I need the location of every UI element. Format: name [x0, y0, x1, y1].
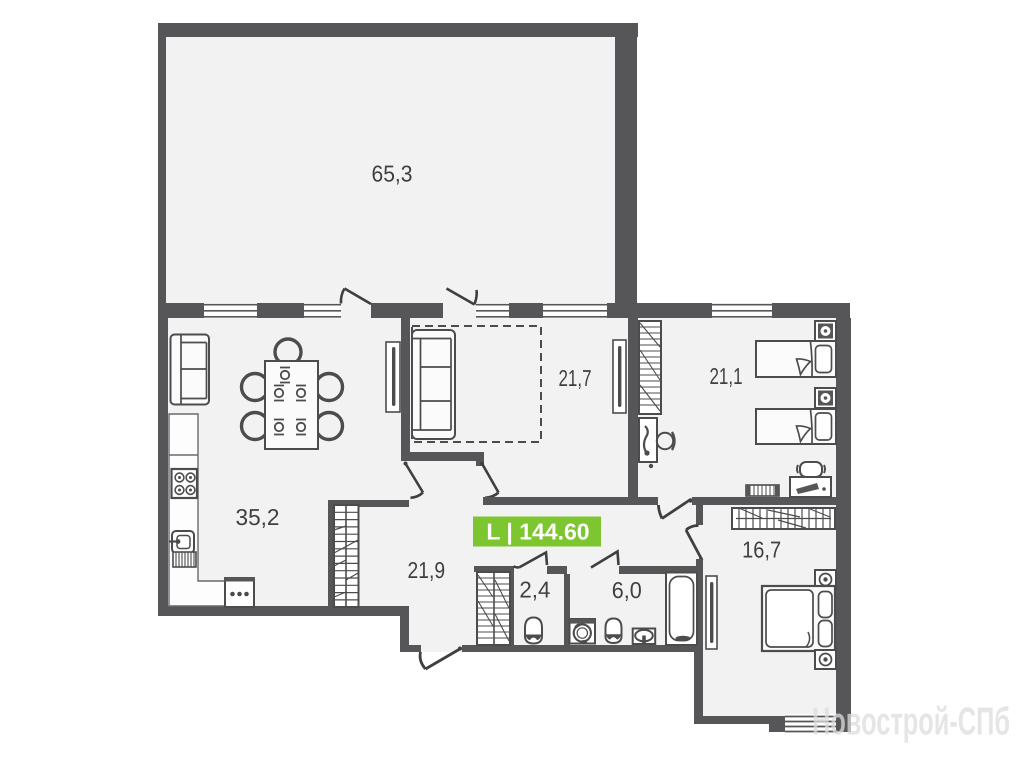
svg-text:Новострой-СПб: Новострой-СПб	[812, 701, 1010, 744]
svg-text:21,7: 21,7	[559, 365, 592, 391]
svg-text:L | 144.60: L | 144.60	[486, 519, 589, 546]
svg-text:2,4: 2,4	[519, 577, 550, 603]
svg-text:21,1: 21,1	[710, 363, 743, 389]
svg-text:21,9: 21,9	[408, 557, 446, 583]
svg-text:6,0: 6,0	[612, 577, 642, 603]
svg-text:65,3: 65,3	[372, 161, 413, 187]
svg-text:35,2: 35,2	[236, 504, 280, 530]
svg-text:16,7: 16,7	[742, 537, 781, 563]
